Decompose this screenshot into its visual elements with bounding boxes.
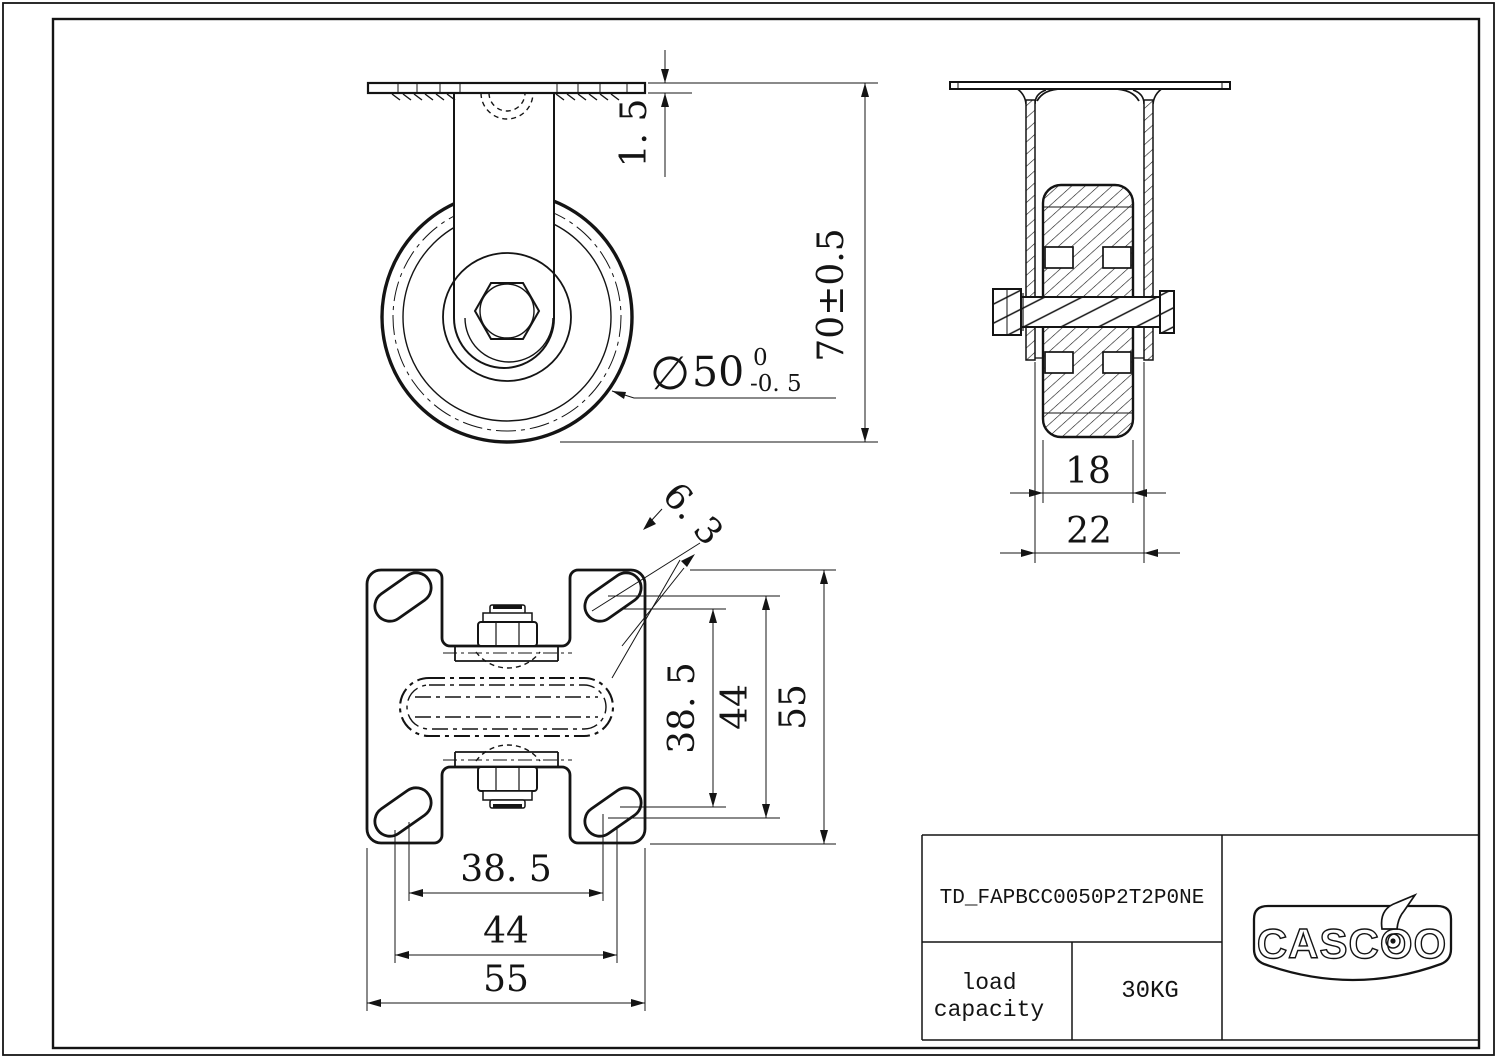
- top-plate-view: [367, 567, 647, 843]
- dim-slot-width: 6. 3: [592, 475, 731, 678]
- dim-text-diameter-value: 50: [692, 348, 744, 396]
- front-view: [368, 83, 645, 442]
- dim-plate-thickness: 1. 5: [614, 50, 669, 177]
- dim-wheel-width: 18: [1010, 440, 1166, 503]
- slot-bottom-left: [369, 782, 437, 842]
- front-view-dimensions: 1. 5 70±0.5 ∅ 50 0 -0. 5: [560, 50, 878, 442]
- dim-plate-size-vertical: 55: [773, 570, 828, 844]
- mounting-plate-front: [368, 83, 645, 93]
- dim-text-diameter-tol-upper: 0: [753, 345, 768, 371]
- dim-text-plate-size-vertical: 55: [773, 684, 814, 730]
- dim-text-plate-size-horizontal: 55: [483, 959, 529, 1000]
- mounting-plate-side: [950, 82, 1230, 89]
- dim-text-slot-span-vertical: 44: [715, 684, 756, 730]
- dim-text-diameter-tol-lower: -0. 5: [750, 371, 802, 397]
- dim-text-slot-span-horizontal: 44: [483, 911, 529, 952]
- title-block: TD_FAPBCC0050P2T2P0NE load capacity 30KG…: [922, 835, 1479, 1040]
- dim-plate-size-horizontal: 55: [367, 959, 645, 1007]
- dim-text-plate-thickness: 1. 5: [614, 99, 655, 168]
- drawing-sheet: 1. 5 70±0.5 ∅ 50 0 -0. 5: [0, 0, 1497, 1058]
- load-capacity-label-line1: load: [961, 970, 1016, 996]
- brand-name: CASCOO: [1257, 920, 1447, 967]
- top-view-dimensions: 6. 3 38. 5 44 55: [367, 475, 836, 1011]
- part-number: TD_FAPBCC0050P2T2P0NE: [940, 887, 1205, 910]
- dim-text-fork-span: 22: [1066, 511, 1112, 552]
- dim-text-diameter-symbol: ∅: [650, 346, 690, 400]
- dim-text-overall-height: 70±0.5: [811, 228, 852, 361]
- dim-text-wheel-width: 18: [1065, 451, 1111, 492]
- dim-slot-span-horizontal: 44: [395, 911, 617, 959]
- dim-bolt-pitch-horizontal: 38. 5: [409, 849, 603, 897]
- slot-bottom-right: [579, 782, 647, 842]
- dim-wheel-diameter: ∅ 50 0 -0. 5: [612, 345, 836, 400]
- dim-slot-span-vertical: 44: [715, 596, 770, 818]
- dim-bolt-pitch-vertical: 38. 5: [662, 609, 717, 807]
- side-view: [950, 82, 1230, 437]
- axle-nut-bottom: [478, 767, 537, 808]
- dim-text-bolt-pitch-horizontal: 38. 5: [460, 849, 552, 890]
- dim-text-bolt-pitch-vertical: 38. 5: [662, 662, 703, 754]
- axle-bolt-top: [478, 605, 537, 646]
- load-capacity-label-line2: capacity: [934, 997, 1045, 1023]
- dim-text-slot-width: 6. 3: [654, 475, 730, 553]
- fork-flanges: [443, 646, 572, 767]
- cascoo-logo: CASCOO: [1254, 895, 1451, 980]
- hidden-wheel-outline: [400, 678, 613, 736]
- sheet-frame: [3, 3, 1494, 1055]
- engineering-drawing: 1. 5 70±0.5 ∅ 50 0 -0. 5: [0, 0, 1497, 1058]
- slot-top-right: [579, 567, 647, 627]
- load-capacity-value: 30KG: [1121, 978, 1179, 1005]
- slot-top-left: [369, 567, 437, 627]
